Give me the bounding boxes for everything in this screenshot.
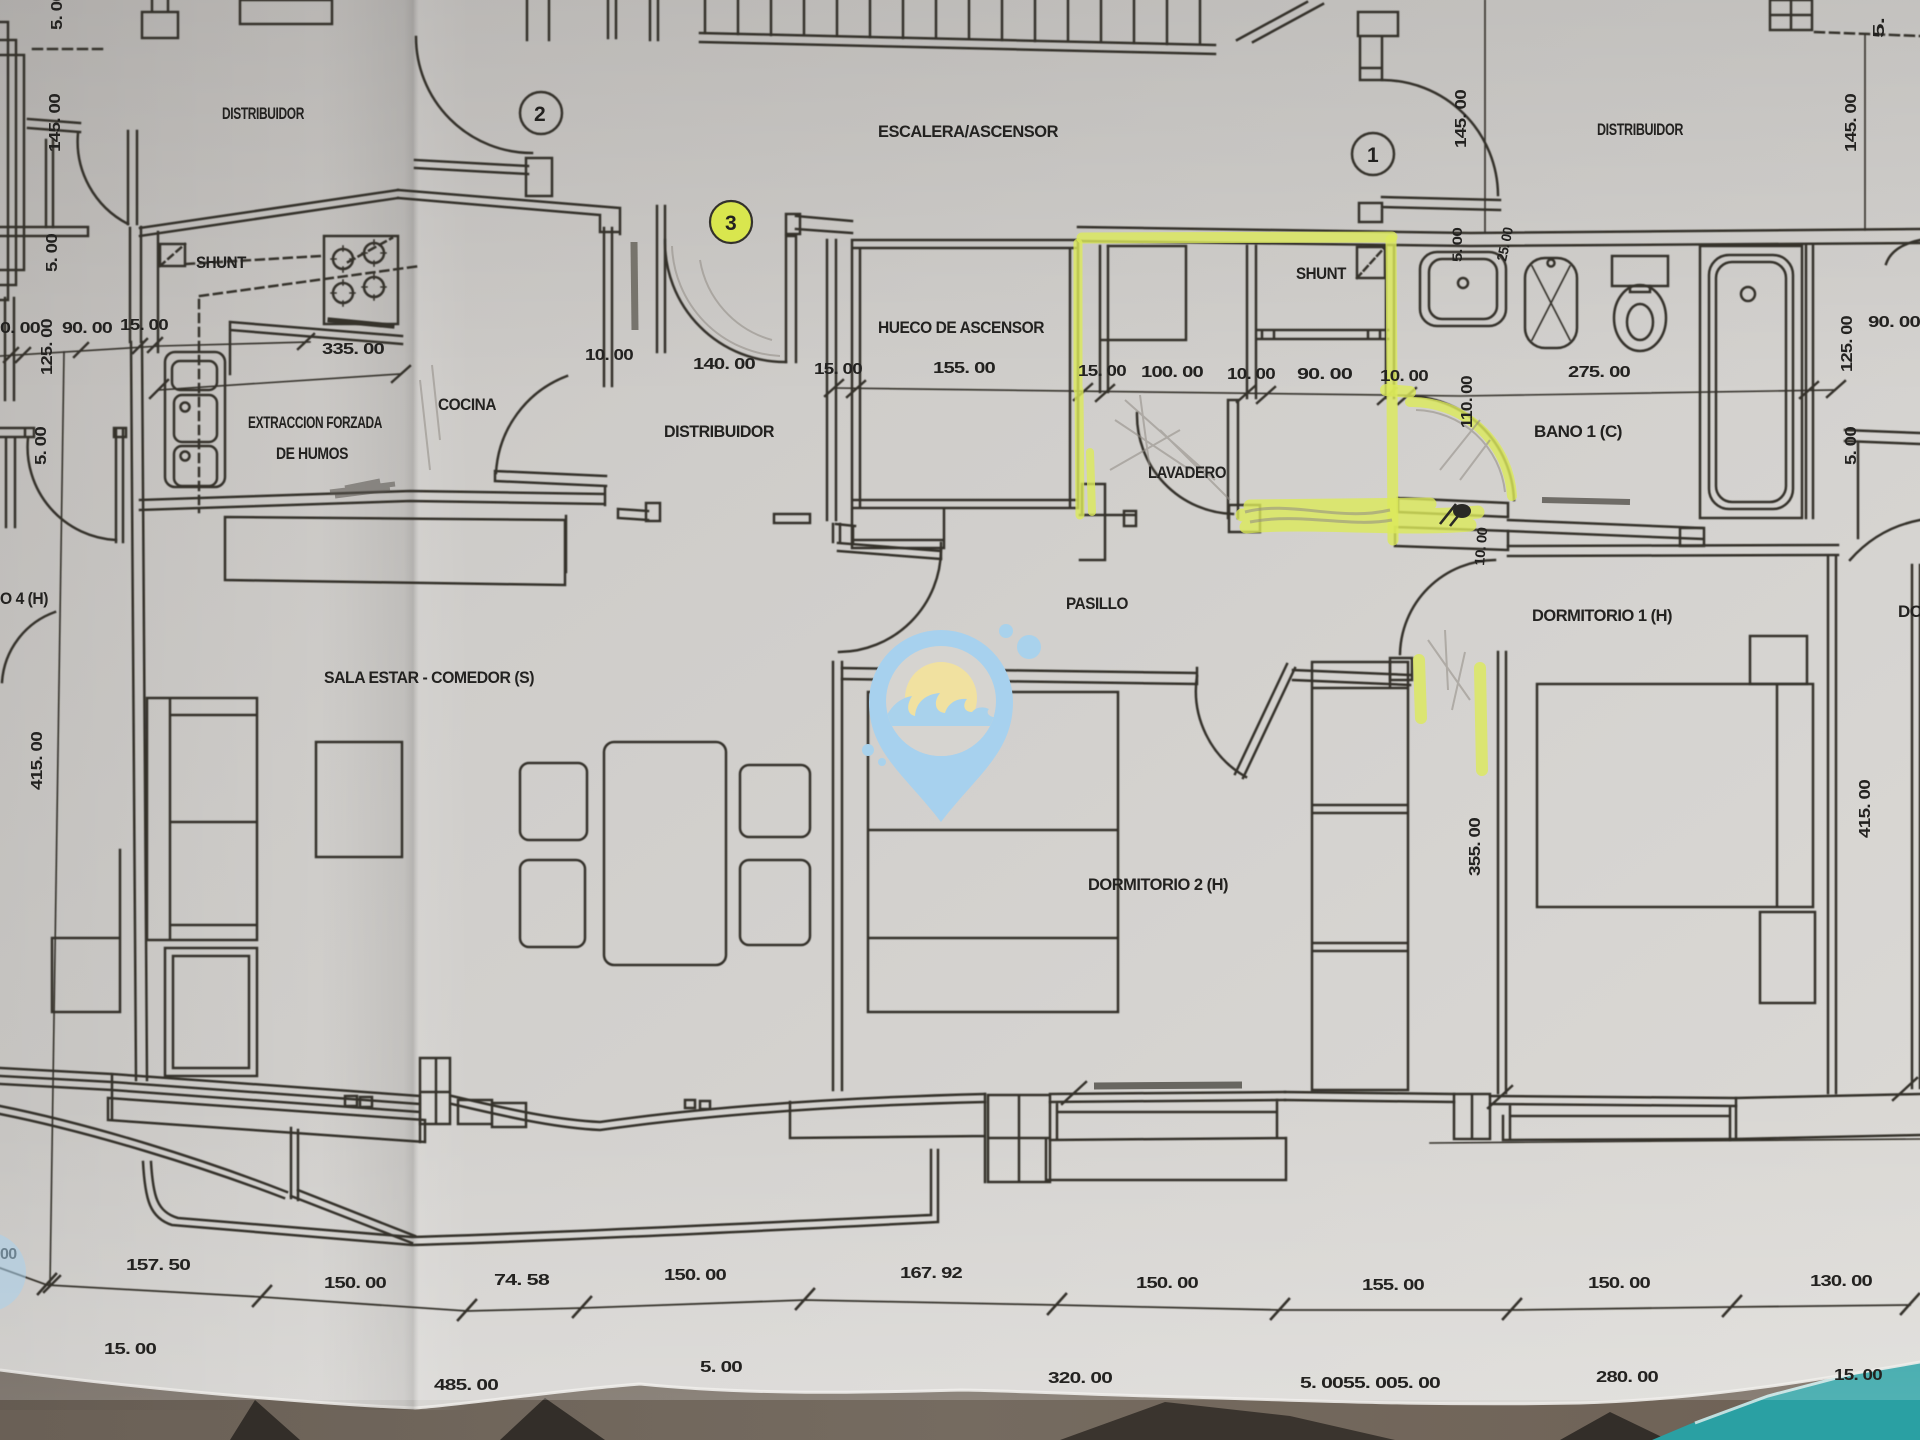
svg-text:10. 00: 10. 00 [1227, 366, 1276, 383]
svg-text:15. 00: 15. 00 [814, 361, 863, 378]
svg-text:5. 00: 5. 00 [700, 1359, 743, 1376]
svg-text:HUECO DE ASCENSOR: HUECO DE ASCENSOR [878, 318, 1044, 337]
svg-text:BANO 1 (C): BANO 1 (C) [1534, 422, 1622, 441]
svg-text:2: 2 [534, 103, 546, 126]
svg-text:5. 00: 5. 00 [44, 233, 61, 272]
svg-text:5. 0055. 005. 00: 5. 0055. 005. 00 [1300, 1375, 1441, 1392]
svg-text:5.: 5. [1871, 18, 1888, 38]
svg-text:DISTRIBUIDOR: DISTRIBUIDOR [664, 422, 774, 441]
svg-text:275. 00: 275. 00 [1568, 364, 1631, 381]
svg-text:150. 00: 150. 00 [1136, 1275, 1199, 1292]
svg-text:100. 00: 100. 00 [1141, 364, 1204, 381]
svg-text:O 4 (H): O 4 (H) [0, 589, 48, 608]
svg-text:DORMITORIO 1 (H): DORMITORIO 1 (H) [1532, 606, 1672, 625]
svg-text:15. 00: 15. 00 [104, 1341, 157, 1358]
svg-text:90. 00: 90. 00 [1297, 366, 1353, 383]
svg-text:DE HUMOS: DE HUMOS [276, 444, 348, 463]
svg-text:130. 00: 130. 00 [1810, 1273, 1873, 1290]
svg-text:DISTRIBUIDOR: DISTRIBUIDOR [1597, 120, 1683, 139]
svg-text:0. 00: 0. 00 [0, 320, 41, 337]
svg-text:335. 00: 335. 00 [322, 341, 385, 358]
svg-text:5. 00: 5. 00 [1843, 426, 1860, 465]
svg-text:10. 00: 10. 00 [585, 347, 634, 364]
svg-text:415. 00: 415. 00 [29, 731, 46, 790]
svg-text:5. 00: 5. 00 [33, 426, 50, 465]
svg-text:DORMITORIO 2 (H): DORMITORIO 2 (H) [1088, 875, 1228, 894]
svg-text:LAVADERO: LAVADERO [1148, 463, 1226, 482]
svg-text:157. 50: 157. 50 [126, 1257, 191, 1274]
svg-text:140. 00: 140. 00 [693, 356, 756, 373]
svg-text:155. 00: 155. 00 [933, 360, 996, 377]
svg-text:DISTRIBUIDOR: DISTRIBUIDOR [222, 104, 304, 123]
svg-text:SHUNT: SHUNT [1296, 264, 1347, 283]
svg-text:145. 00: 145. 00 [47, 93, 64, 152]
svg-text:74. 58: 74. 58 [494, 1272, 550, 1289]
svg-text:DO: DO [1898, 602, 1920, 621]
svg-text:5. 00: 5. 00 [49, 0, 66, 30]
svg-text:5. 00: 5. 00 [1449, 227, 1465, 262]
svg-text:150. 00: 150. 00 [664, 1267, 727, 1284]
svg-text:COCINA: COCINA [438, 395, 496, 414]
svg-text:167. 92: 167. 92 [900, 1265, 963, 1282]
svg-text:1: 1 [1367, 144, 1379, 167]
svg-text:280. 00: 280. 00 [1596, 1369, 1659, 1386]
svg-text:PASILLO: PASILLO [1066, 594, 1128, 613]
svg-text:145. 00: 145. 00 [1843, 93, 1860, 152]
svg-text:90. 00: 90. 00 [62, 320, 113, 337]
svg-text:10. 00: 10. 00 [1380, 368, 1429, 385]
svg-text:15. 00: 15. 00 [120, 317, 169, 334]
svg-text:355. 00: 355. 00 [1467, 817, 1484, 876]
svg-text:3: 3 [725, 212, 737, 235]
svg-text:125. 00: 125. 00 [1839, 315, 1856, 372]
svg-text:SALA ESTAR - COMEDOR (S): SALA ESTAR - COMEDOR (S) [324, 668, 534, 687]
svg-text:485. 00: 485. 00 [434, 1377, 499, 1394]
svg-text:110. 00: 110. 00 [1459, 375, 1476, 428]
svg-text:150. 00: 150. 00 [324, 1275, 387, 1292]
svg-text:155. 00: 155. 00 [1362, 1277, 1425, 1294]
svg-text:150. 00: 150. 00 [1588, 1275, 1651, 1292]
svg-text:145. 00: 145. 00 [1453, 89, 1470, 148]
svg-text:15. 00: 15. 00 [1078, 363, 1127, 380]
svg-text:15. 00: 15. 00 [1834, 1367, 1883, 1384]
svg-text:SHUNT: SHUNT [196, 253, 247, 272]
svg-text:320. 00: 320. 00 [1048, 1370, 1113, 1387]
svg-text:90. 00: 90. 00 [1868, 314, 1920, 331]
svg-text:EXTRACCION FORZADA: EXTRACCION FORZADA [248, 413, 382, 432]
svg-text:10. 00: 10. 00 [1471, 526, 1490, 566]
svg-text:415. 00: 415. 00 [1857, 779, 1874, 838]
svg-text:125. 00: 125. 00 [39, 318, 56, 375]
svg-text:ESCALERA/ASCENSOR: ESCALERA/ASCENSOR [878, 122, 1058, 141]
